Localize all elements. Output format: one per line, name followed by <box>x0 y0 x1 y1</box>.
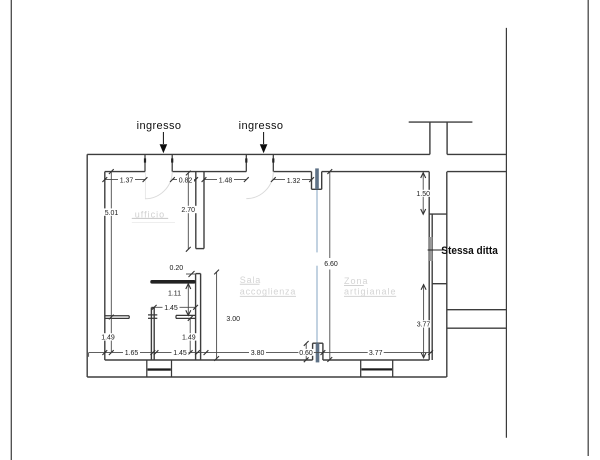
svg-text:3.80: 3.80 <box>251 350 265 357</box>
svg-text:6.60: 6.60 <box>324 261 338 268</box>
svg-text:artigianale: artigianale <box>344 287 397 297</box>
svg-text:3.00: 3.00 <box>226 316 240 323</box>
svg-text:3.77: 3.77 <box>369 350 383 357</box>
svg-text:ingresso: ingresso <box>137 120 182 132</box>
svg-text:accoglienza: accoglienza <box>240 287 296 297</box>
svg-text:Sala: Sala <box>240 275 261 285</box>
svg-text:Zona: Zona <box>344 276 369 286</box>
svg-text:1.45: 1.45 <box>164 305 178 312</box>
svg-text:1.50: 1.50 <box>416 191 430 198</box>
svg-text:3.77: 3.77 <box>417 322 431 329</box>
svg-text:1.37: 1.37 <box>120 177 134 184</box>
svg-text:Stessa ditta: Stessa ditta <box>441 245 498 257</box>
svg-text:1.48: 1.48 <box>219 177 233 184</box>
svg-text:5.01: 5.01 <box>105 210 119 217</box>
svg-text:1.45: 1.45 <box>173 350 187 357</box>
svg-text:0.82: 0.82 <box>179 177 193 184</box>
svg-text:1.49: 1.49 <box>182 335 196 342</box>
svg-text:1.49: 1.49 <box>101 335 115 342</box>
svg-text:0.20: 0.20 <box>169 265 183 272</box>
svg-text:ingresso: ingresso <box>239 120 284 132</box>
svg-text:1.32: 1.32 <box>287 178 301 185</box>
svg-text:1.65: 1.65 <box>125 350 139 357</box>
svg-text:1.11: 1.11 <box>168 291 181 298</box>
svg-text:0.60: 0.60 <box>299 350 313 357</box>
svg-text:2.70: 2.70 <box>181 207 195 214</box>
